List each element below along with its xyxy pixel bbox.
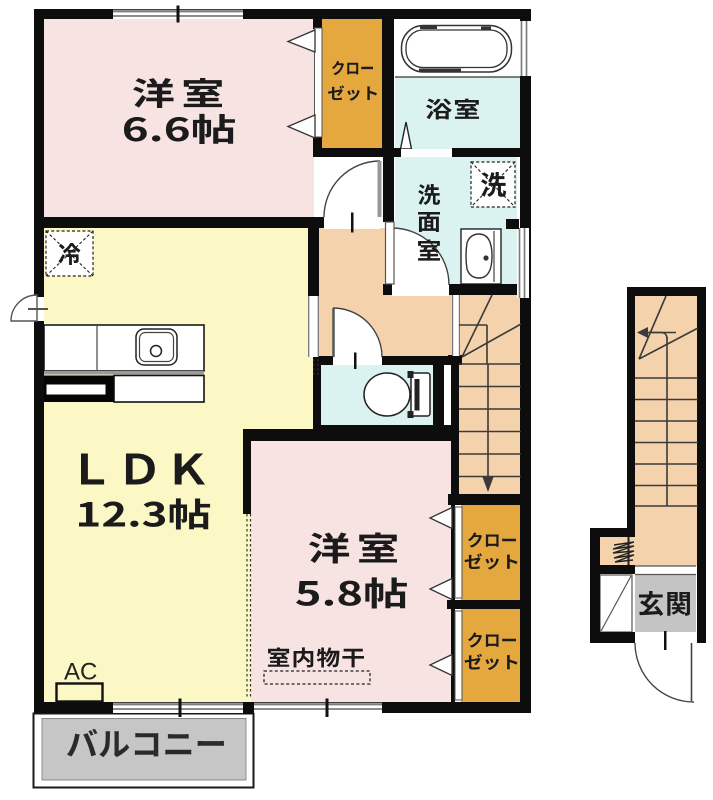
- svg-text:AC: AC: [64, 659, 97, 686]
